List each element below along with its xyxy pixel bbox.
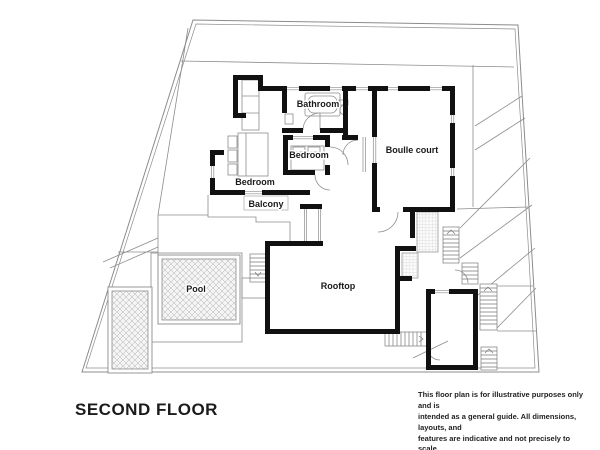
bedroom-left-label: Bedroom [235,177,275,187]
disclaimer-line: intended as a general guide. All dimensi… [418,412,593,434]
balcony-label: Balcony [248,199,283,209]
planter-area [108,287,152,373]
boulle-court-label: Boulle court [386,145,439,155]
bedroom-center-label: Bedroom [289,150,329,160]
rooftop-label: Rooftop [321,281,356,291]
wardrobe [242,80,259,130]
floor-plan-drawing: Bathroom Bedroom Bedroom Balcony Boulle … [0,0,600,450]
disclaimer-line: This floor plan is for illustrative purp… [418,390,593,412]
sink [285,114,293,124]
bathroom-label: Bathroom [297,99,340,109]
floor-title: SECOND FLOOR [75,400,218,420]
floor-plan-page: Bathroom Bedroom Bedroom Balcony Boulle … [0,0,600,450]
disclaimer-line: features are indicative and not precisel… [418,434,593,450]
staircase-bottom [385,332,427,346]
staircase-court [443,227,459,263]
hatch-areas [402,212,438,278]
staircase-right [480,284,497,330]
staircase-pool [250,254,266,282]
stairs [250,227,497,370]
bed-master [228,133,268,176]
staircase-bottom-right [481,347,497,370]
pool-label: Pool [186,284,206,294]
disclaimer-text: This floor plan is for illustrative purp… [418,390,593,450]
